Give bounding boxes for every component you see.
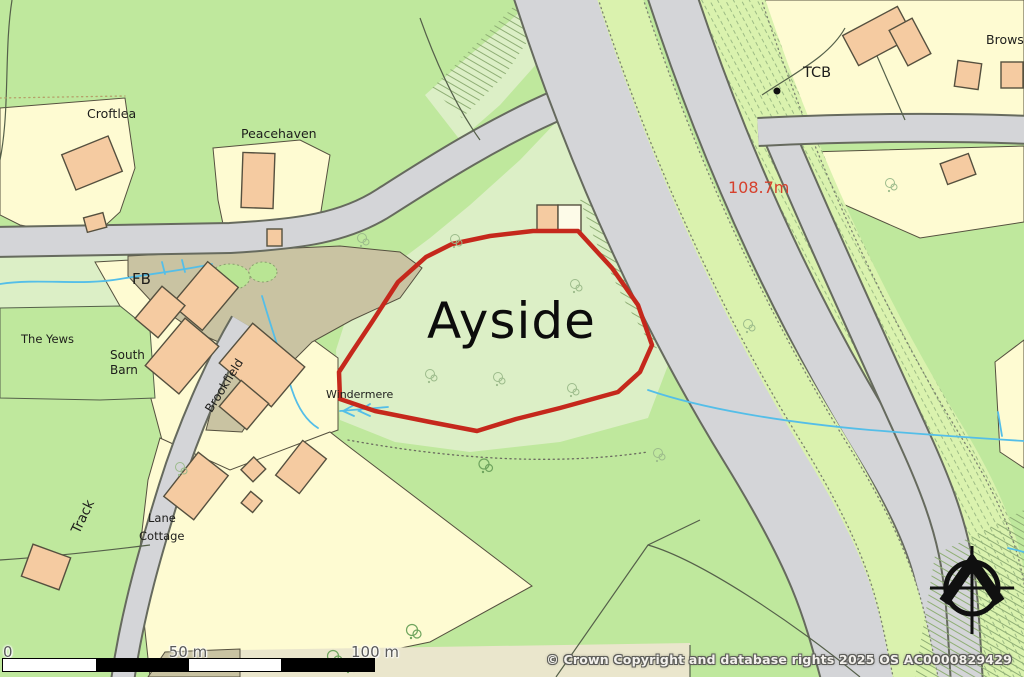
label-peacehaven: Peacehaven (241, 128, 317, 141)
label-lane-cottage-1: Lane (148, 513, 176, 525)
label-croftlea: Croftlea (87, 108, 136, 121)
label-the-yews: The Yews (21, 334, 74, 346)
label-south-barn-2: Barn (110, 364, 138, 376)
scale-bar (2, 658, 375, 672)
copyright-notice: © Crown Copyright and database rights 20… (546, 652, 1012, 667)
label-fb: FB (132, 272, 151, 287)
tcb-marker-dot (774, 88, 781, 95)
label-browside: Browside (986, 34, 1024, 47)
label-lane-cottage-2: Cottage (139, 531, 185, 543)
label-south-barn-1: South (110, 349, 145, 361)
map-screenshot: Croftlea Peacehaven FB The Yews South Ba… (0, 0, 1024, 677)
label-windermere: Windermere (326, 389, 393, 400)
label-ayside: Ayside (427, 296, 596, 346)
label-tcb: TCB (803, 66, 831, 81)
label-spot-height: 108.7m (728, 180, 789, 196)
